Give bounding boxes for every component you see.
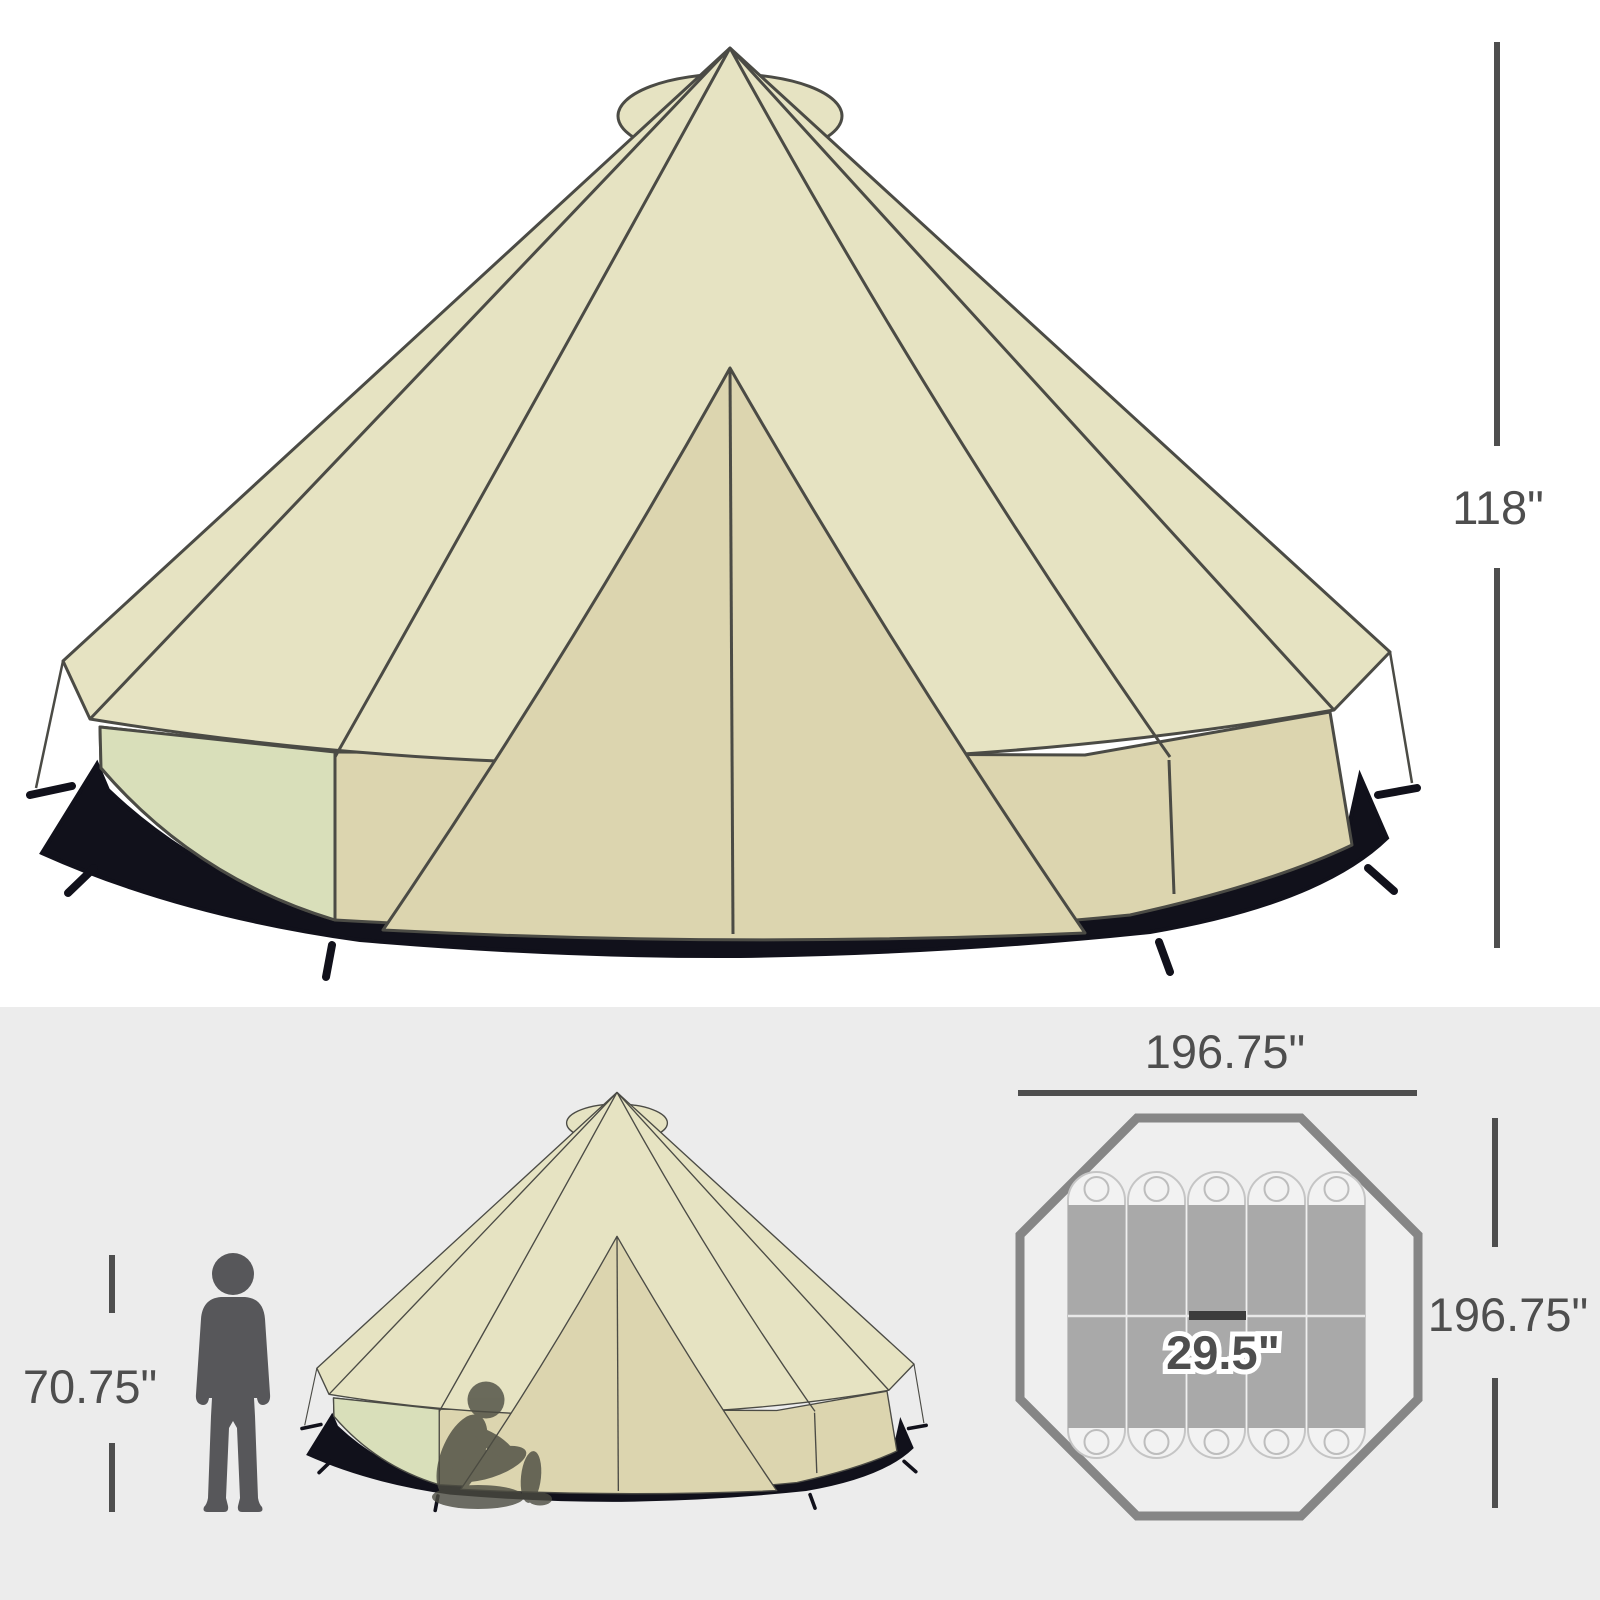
mat-width-dim-bar bbox=[1189, 1311, 1246, 1320]
mat-width-label: 29.5" bbox=[1166, 1326, 1280, 1379]
height-dim-label: 118" bbox=[1452, 481, 1544, 534]
tent-dimension-diagram: 118" 70.75" 196.75" bbox=[0, 0, 1600, 1600]
person-dim-label: 70.75" bbox=[23, 1360, 157, 1413]
plan-depth-label: 196.75" bbox=[1428, 1288, 1588, 1341]
seated-person-head bbox=[468, 1382, 505, 1419]
diagram-canvas: 118" 70.75" 196.75" bbox=[0, 0, 1600, 1600]
standing-person-head bbox=[212, 1253, 254, 1295]
seated-person-seat bbox=[432, 1485, 524, 1509]
seated-person-foot bbox=[528, 1493, 552, 1506]
plan-width-label: 196.75" bbox=[1145, 1025, 1305, 1078]
